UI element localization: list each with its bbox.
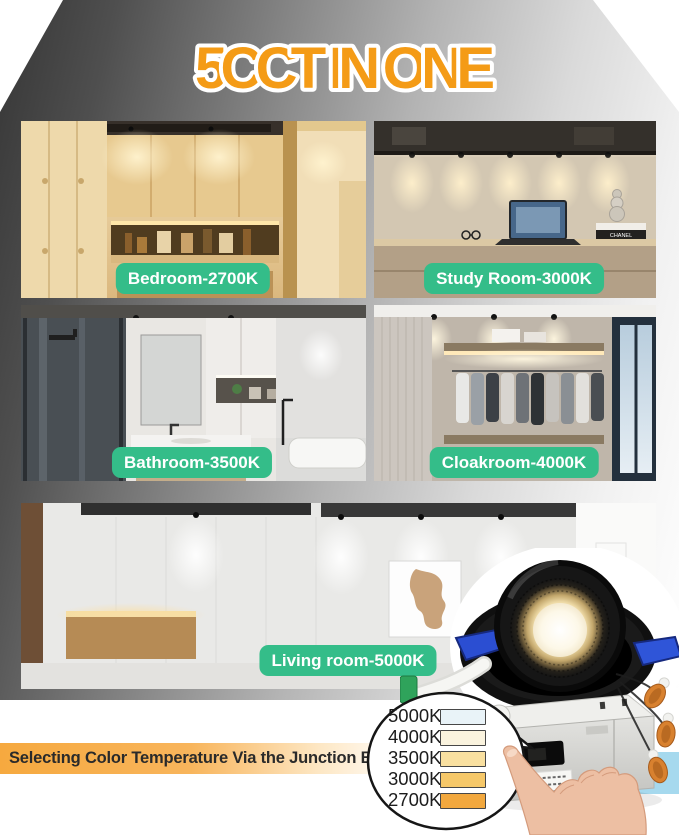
cct-label-4000k: 4000K (388, 728, 440, 747)
cct-label-2700k: 2700K (388, 791, 440, 810)
bedroom-doorway (283, 121, 366, 298)
headline-text: 5CCT IN ONE (195, 36, 495, 101)
bathroom-tub-area (276, 318, 366, 468)
advertisement-canvas: 5CCT IN ONE (0, 0, 679, 835)
pointing-hand (468, 742, 654, 835)
headline: 5CCT IN ONE (0, 0, 679, 104)
bedroom-wardrobe (21, 121, 107, 298)
room-label-bathroom: Bathroom-3500K (112, 447, 272, 478)
downlight-head (494, 560, 626, 692)
study-overhead-cabinet (374, 121, 656, 155)
cct-swatch-5000k (440, 709, 486, 725)
bedroom-niche-shelf (111, 221, 279, 263)
bedroom-upper-cabinets (101, 129, 283, 217)
room-label-bedroom: Bedroom-2700K (116, 263, 270, 294)
book-spine-text: CHANEL (610, 233, 632, 239)
room-label-study: Study Room-3000K (424, 263, 604, 294)
cct-label-3000k: 3000K (388, 770, 440, 789)
led-light-center (533, 603, 587, 657)
cct-label-5000k: 5000K (388, 707, 440, 726)
caption-text: Selecting Color Temperature Via the Junc… (9, 749, 391, 768)
cloakroom-sliding-door (374, 317, 432, 481)
cct-label-3500k: 3500K (388, 749, 440, 768)
cloakroom-window (612, 317, 656, 481)
room-label-cloakroom: Cloakroom-4000K (430, 447, 599, 478)
cct-row: 5000K (388, 706, 486, 727)
bathroom-shower-glass (21, 318, 126, 481)
